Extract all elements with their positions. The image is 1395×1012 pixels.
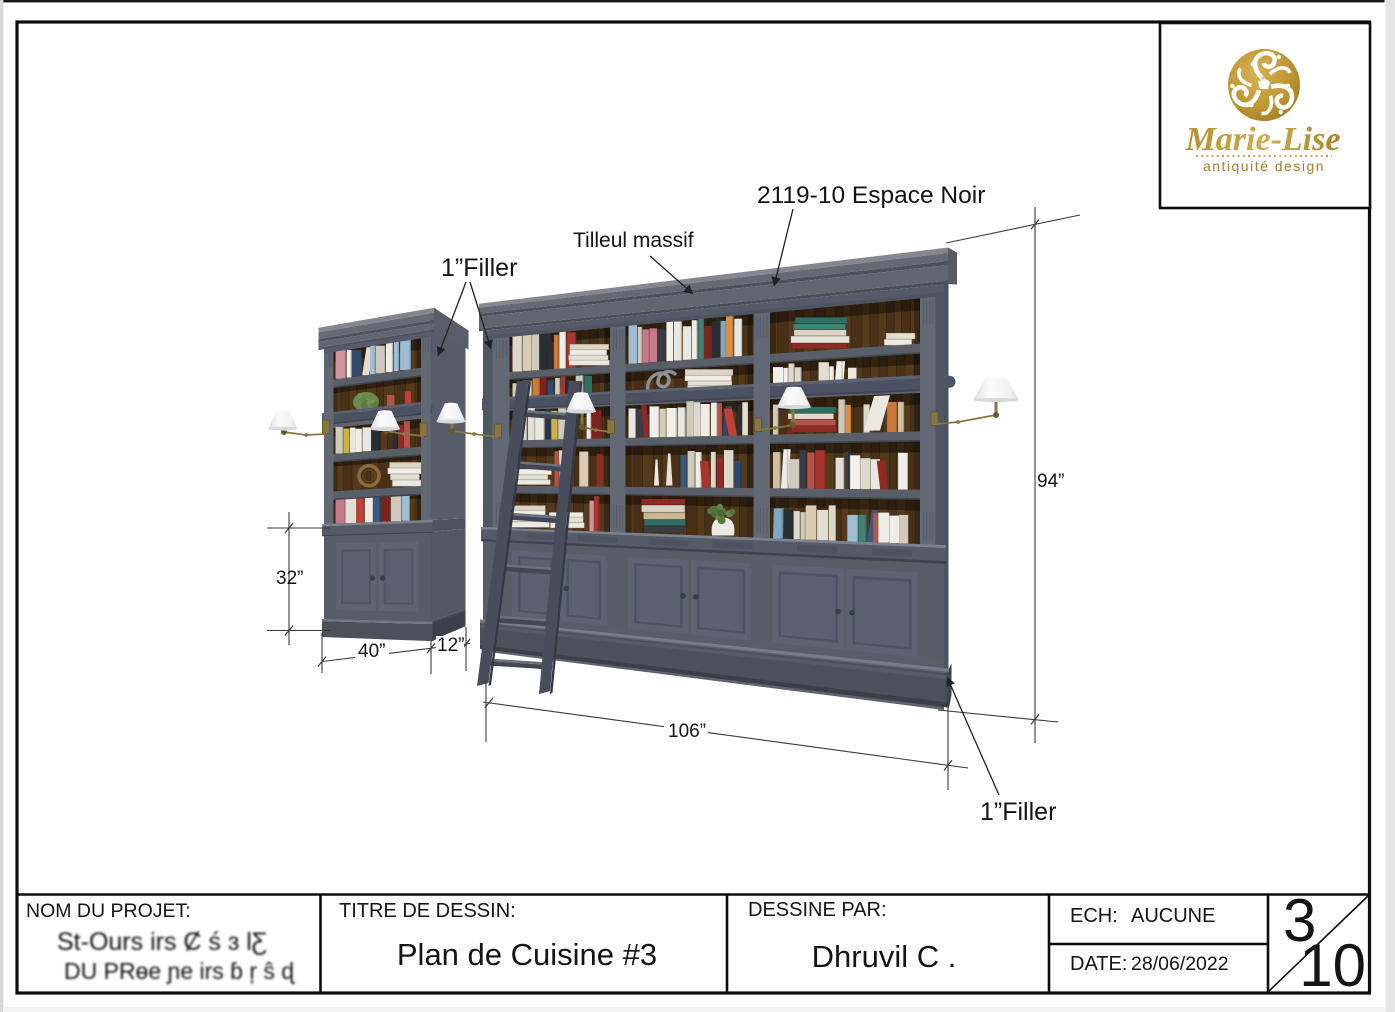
svg-text:St-Ours irs Ȼ ś ɜ lƸ: St-Ours irs Ȼ ś ɜ lƸ	[57, 928, 267, 956]
svg-text:2119-10 Espace Noir: 2119-10 Espace Noir	[757, 182, 985, 209]
svg-text:12”: 12”	[437, 635, 464, 656]
svg-text:94”: 94”	[1037, 471, 1064, 492]
svg-text:Marie-Lise: Marie-Lise	[1185, 121, 1341, 158]
svg-text:NOM DU PROJET:: NOM DU PROJET:	[26, 900, 191, 922]
svg-text:1”Filler: 1”Filler	[441, 254, 517, 282]
svg-text:DU PRɵe ɲe irs ɓ ŗ ŝ ɖ: DU PRɵe ɲe irs ɓ ŗ ŝ ɖ	[64, 958, 295, 984]
svg-text:TITRE DE DESSIN:: TITRE DE DESSIN:	[339, 900, 516, 922]
svg-text:Dhruvil C .: Dhruvil C .	[812, 939, 957, 974]
svg-text:10: 10	[1299, 932, 1366, 999]
svg-text:106”: 106”	[668, 721, 706, 742]
svg-text:40”: 40”	[358, 641, 385, 662]
svg-text:32”: 32”	[276, 568, 303, 589]
svg-text:AUCUNE: AUCUNE	[1131, 905, 1215, 927]
svg-text:28/06/2022: 28/06/2022	[1131, 953, 1229, 975]
svg-text:1”Filler: 1”Filler	[980, 798, 1056, 826]
svg-text:ECH:: ECH:	[1070, 905, 1118, 927]
svg-text:Tilleul massif: Tilleul massif	[573, 229, 694, 252]
svg-text:Plan de Cuisine #3: Plan de Cuisine #3	[397, 937, 657, 972]
svg-text:DATE:: DATE:	[1070, 953, 1127, 975]
svg-text:DESSINE PAR:: DESSINE PAR:	[748, 899, 887, 921]
svg-text:antiquité design: antiquité design	[1203, 158, 1325, 174]
